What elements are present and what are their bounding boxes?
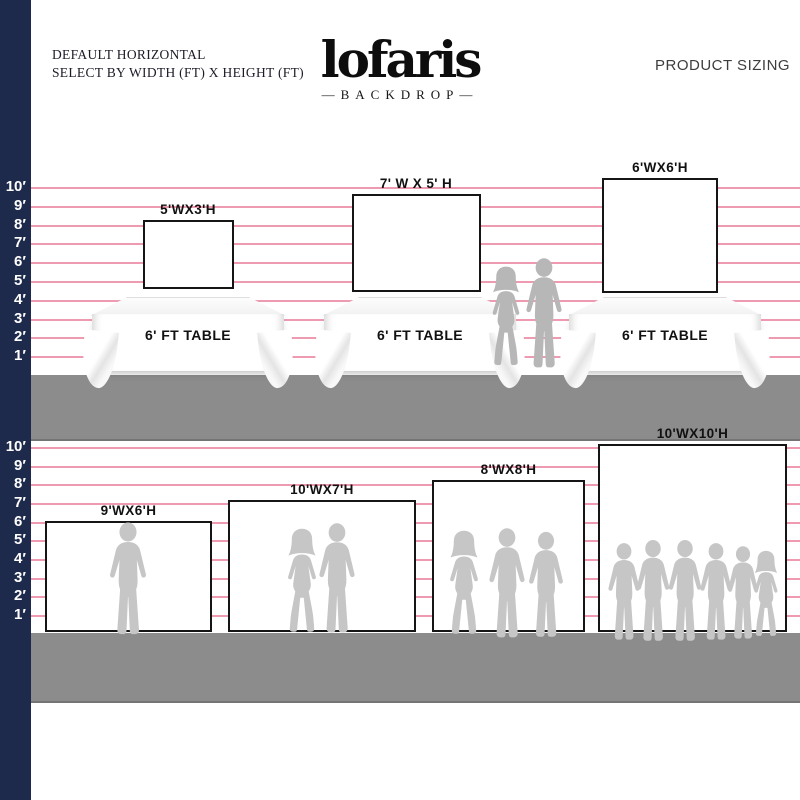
- ruler-tick-label: 9′: [0, 197, 26, 215]
- ruler-tick-label: 1′: [0, 606, 26, 624]
- man-silhouette: [100, 522, 156, 636]
- group-silhouette: [601, 524, 785, 658]
- backdrop-label-8x8: 8'WX8'H: [432, 462, 585, 478]
- backdrop-label-5x3: 5'WX3'H: [133, 202, 243, 218]
- table-3: 6' FT TABLE: [567, 297, 763, 389]
- backdrop-label-10x7: 10'WX7'H: [228, 482, 416, 498]
- brand-logo-subtitle: —BACKDROP—: [0, 87, 800, 103]
- ruler-tick-label: 5′: [0, 531, 26, 549]
- ruler-tick-label: 8′: [0, 475, 26, 493]
- backdrop-7x5: [352, 194, 481, 292]
- couple-silhouette: [482, 253, 570, 374]
- ruler-tick-label: 8′: [0, 216, 26, 234]
- ruler-tick-label: 7′: [0, 494, 26, 512]
- ruler-tick-label: 3′: [0, 569, 26, 587]
- ruler-tick-label: 10′: [0, 438, 26, 456]
- backdrop-5x3: [143, 220, 234, 289]
- backdrop-label-6x6: 6'WX6'H: [592, 160, 728, 176]
- ruler-bar: [0, 0, 31, 800]
- ruler-tick-label: 2′: [0, 328, 26, 346]
- product-sizing-chart: DEFAULT HORIZONTAL SELECT BY WIDTH (FT) …: [0, 0, 800, 800]
- ruler-tick-label: 5′: [0, 272, 26, 290]
- ruler-tick-label: 2′: [0, 587, 26, 605]
- table-label: 6' FT TABLE: [567, 327, 763, 343]
- backdrop-6x6: [602, 178, 718, 293]
- trio-silhouette: [441, 520, 571, 647]
- ruler-tick-label: 4′: [0, 291, 26, 309]
- ruler-tick-label: 10′: [0, 178, 26, 196]
- backdrop-label-7x5: 7' W X 5' H: [342, 176, 490, 192]
- ruler-tick-label: 6′: [0, 513, 26, 531]
- backdrop-label-10x10: 10'WX10'H: [598, 426, 787, 442]
- table-1: 6' FT TABLE: [90, 297, 286, 389]
- ruler-tick-label: 1′: [0, 347, 26, 365]
- ruler-tick-label: 4′: [0, 550, 26, 568]
- product-sizing-title: PRODUCT SIZING: [655, 57, 800, 74]
- backdrop-label-9x6: 9'WX6'H: [45, 503, 212, 519]
- ruler-tick-label: 9′: [0, 457, 26, 475]
- table-label: 6' FT TABLE: [90, 327, 286, 343]
- ruler-tick-label: 3′: [0, 310, 26, 328]
- ruler-tick-label: 6′: [0, 253, 26, 271]
- ruler-tick-label: 7′: [0, 234, 26, 252]
- couple-silhouette: [279, 519, 363, 638]
